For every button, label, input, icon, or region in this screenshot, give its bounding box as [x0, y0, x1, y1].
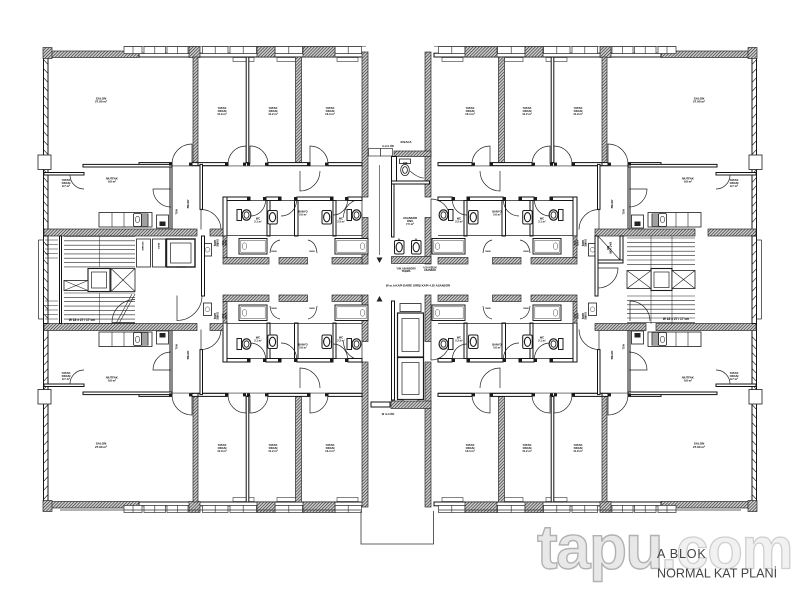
svg-text:HOL: HOL [175, 209, 179, 215]
svg-text:ANTRE: ANTRE [186, 200, 190, 209]
svg-text:BANYO5.6 m²: BANYO5.6 m² [492, 342, 501, 349]
svg-text:W 18 x 27 / 17 cm: W 18 x 27 / 17 cm [663, 317, 689, 321]
svg-text:YATAKODASI11.2 m²: YATAKODASI11.2 m² [522, 443, 532, 453]
svg-text:NORMAL KAT PLANİ: NORMAL KAT PLANİ [657, 567, 777, 581]
svg-text:YATAKODASI11.2 m²: YATAKODASI11.2 m² [268, 106, 278, 116]
svg-text:YATAKODASI9.7 m²: YATAKODASI9.7 m² [62, 178, 71, 188]
svg-text:DAİREGİRİŞ: DAİREGİRİŞ [213, 239, 219, 247]
svg-text:4/75: 4/75 [403, 162, 408, 165]
svg-text:YATAKODASI13.4 m²: YATAKODASI13.4 m² [465, 106, 475, 116]
svg-text:YATAKODASI13.4 m²: YATAKODASI13.4 m² [465, 443, 475, 453]
svg-text:SALON27.90 m²: SALON27.90 m² [95, 96, 107, 103]
svg-text:4.25 KİŞİLİKASANSÖR: 4.25 KİŞİLİKASANSÖR [423, 266, 437, 272]
svg-text:tapu: tapu [537, 514, 662, 583]
svg-text:BANYO5.6 m²: BANYO5.6 m² [492, 209, 501, 216]
svg-text:ANTRE: ANTRE [610, 351, 614, 360]
svg-text:DAİREGİRİŞ: DAİREGİRİŞ [581, 239, 587, 247]
svg-text:55/80: 55/80 [309, 308, 315, 310]
svg-text:HOL: HOL [622, 344, 626, 350]
svg-text:55/80: 55/80 [309, 251, 315, 253]
svg-text:55/80: 55/80 [485, 251, 491, 253]
svg-text:YATAKODASI11.9 m²: YATAKODASI11.9 m² [573, 443, 583, 453]
svg-text:BANYO5.6 m²: BANYO5.6 m² [298, 342, 307, 349]
svg-text:KAPI3/13: KAPI3/13 [221, 313, 227, 319]
svg-text:YATAKODASI13.4 m²: YATAKODASI13.4 m² [325, 443, 335, 453]
svg-text:SALON27.90 m²: SALON27.90 m² [693, 96, 705, 103]
svg-text:YATAKODASI9.7 m²: YATAKODASI9.7 m² [730, 178, 739, 188]
svg-text:KAPI3/13: KAPI3/13 [573, 240, 579, 246]
svg-text:YATAKODASI9.7 m²: YATAKODASI9.7 m² [730, 371, 739, 381]
svg-text:W 18 x 27 / 17 cm: W 18 x 27 / 17 cm [69, 318, 95, 322]
svg-text:DAİREGİRİŞ: DAİREGİRİŞ [581, 312, 587, 320]
svg-text:55/80: 55/80 [523, 308, 529, 310]
svg-text:Ø BACA: Ø BACA [400, 140, 411, 144]
svg-text:DEPO: DEPO [157, 243, 159, 249]
svg-text:SALON27.90 m²: SALON27.90 m² [693, 441, 705, 448]
svg-text:A BLOK: A BLOK [657, 547, 707, 561]
svg-text:BANYO5.6 m²: BANYO5.6 m² [298, 209, 307, 216]
svg-text:55/80: 55/80 [523, 251, 529, 253]
svg-text:HOL: HOL [622, 209, 626, 215]
svg-text:YATAKODASI11.2 m²: YATAKODASI11.2 m² [268, 443, 278, 453]
svg-text:YATAKODASI9.7 m²: YATAKODASI9.7 m² [62, 371, 71, 381]
svg-text:YATAKODASI11.2 m²: YATAKODASI11.2 m² [522, 106, 532, 116]
svg-text:YATAKODASI13.4 m²: YATAKODASI13.4 m² [325, 106, 335, 116]
svg-text:KAPI3/13: KAPI3/13 [221, 240, 227, 246]
svg-text:HOL: HOL [175, 344, 179, 350]
svg-text:SALON27.90 m²: SALON27.90 m² [95, 441, 107, 448]
svg-text:ANTRE: ANTRE [610, 200, 614, 209]
svg-text:55/80: 55/80 [485, 308, 491, 310]
svg-text:55/80: 55/80 [271, 251, 277, 253]
svg-text:KAPI3/13: KAPI3/13 [573, 313, 579, 319]
svg-text:55/80: 55/80 [271, 308, 277, 310]
svg-text:YATAKODASI11.9 m²: YATAKODASI11.9 m² [217, 443, 227, 453]
svg-text:W m.h KAPI DAİRE GİRİŞ KAPI: W m.h KAPI DAİRE GİRİŞ KAPI 4.25 ASANSÖR [386, 284, 451, 288]
svg-text:SIĞINAK: SIĞINAK [141, 241, 144, 251]
svg-text:ANTRE: ANTRE [186, 351, 190, 360]
svg-text:YATAKODASI11.9 m²: YATAKODASI11.9 m² [217, 106, 227, 116]
svg-text:DAİREGİRİŞ: DAİREGİRİŞ [213, 312, 219, 320]
svg-text:YATAKODASI11.9 m²: YATAKODASI11.9 m² [573, 106, 583, 116]
